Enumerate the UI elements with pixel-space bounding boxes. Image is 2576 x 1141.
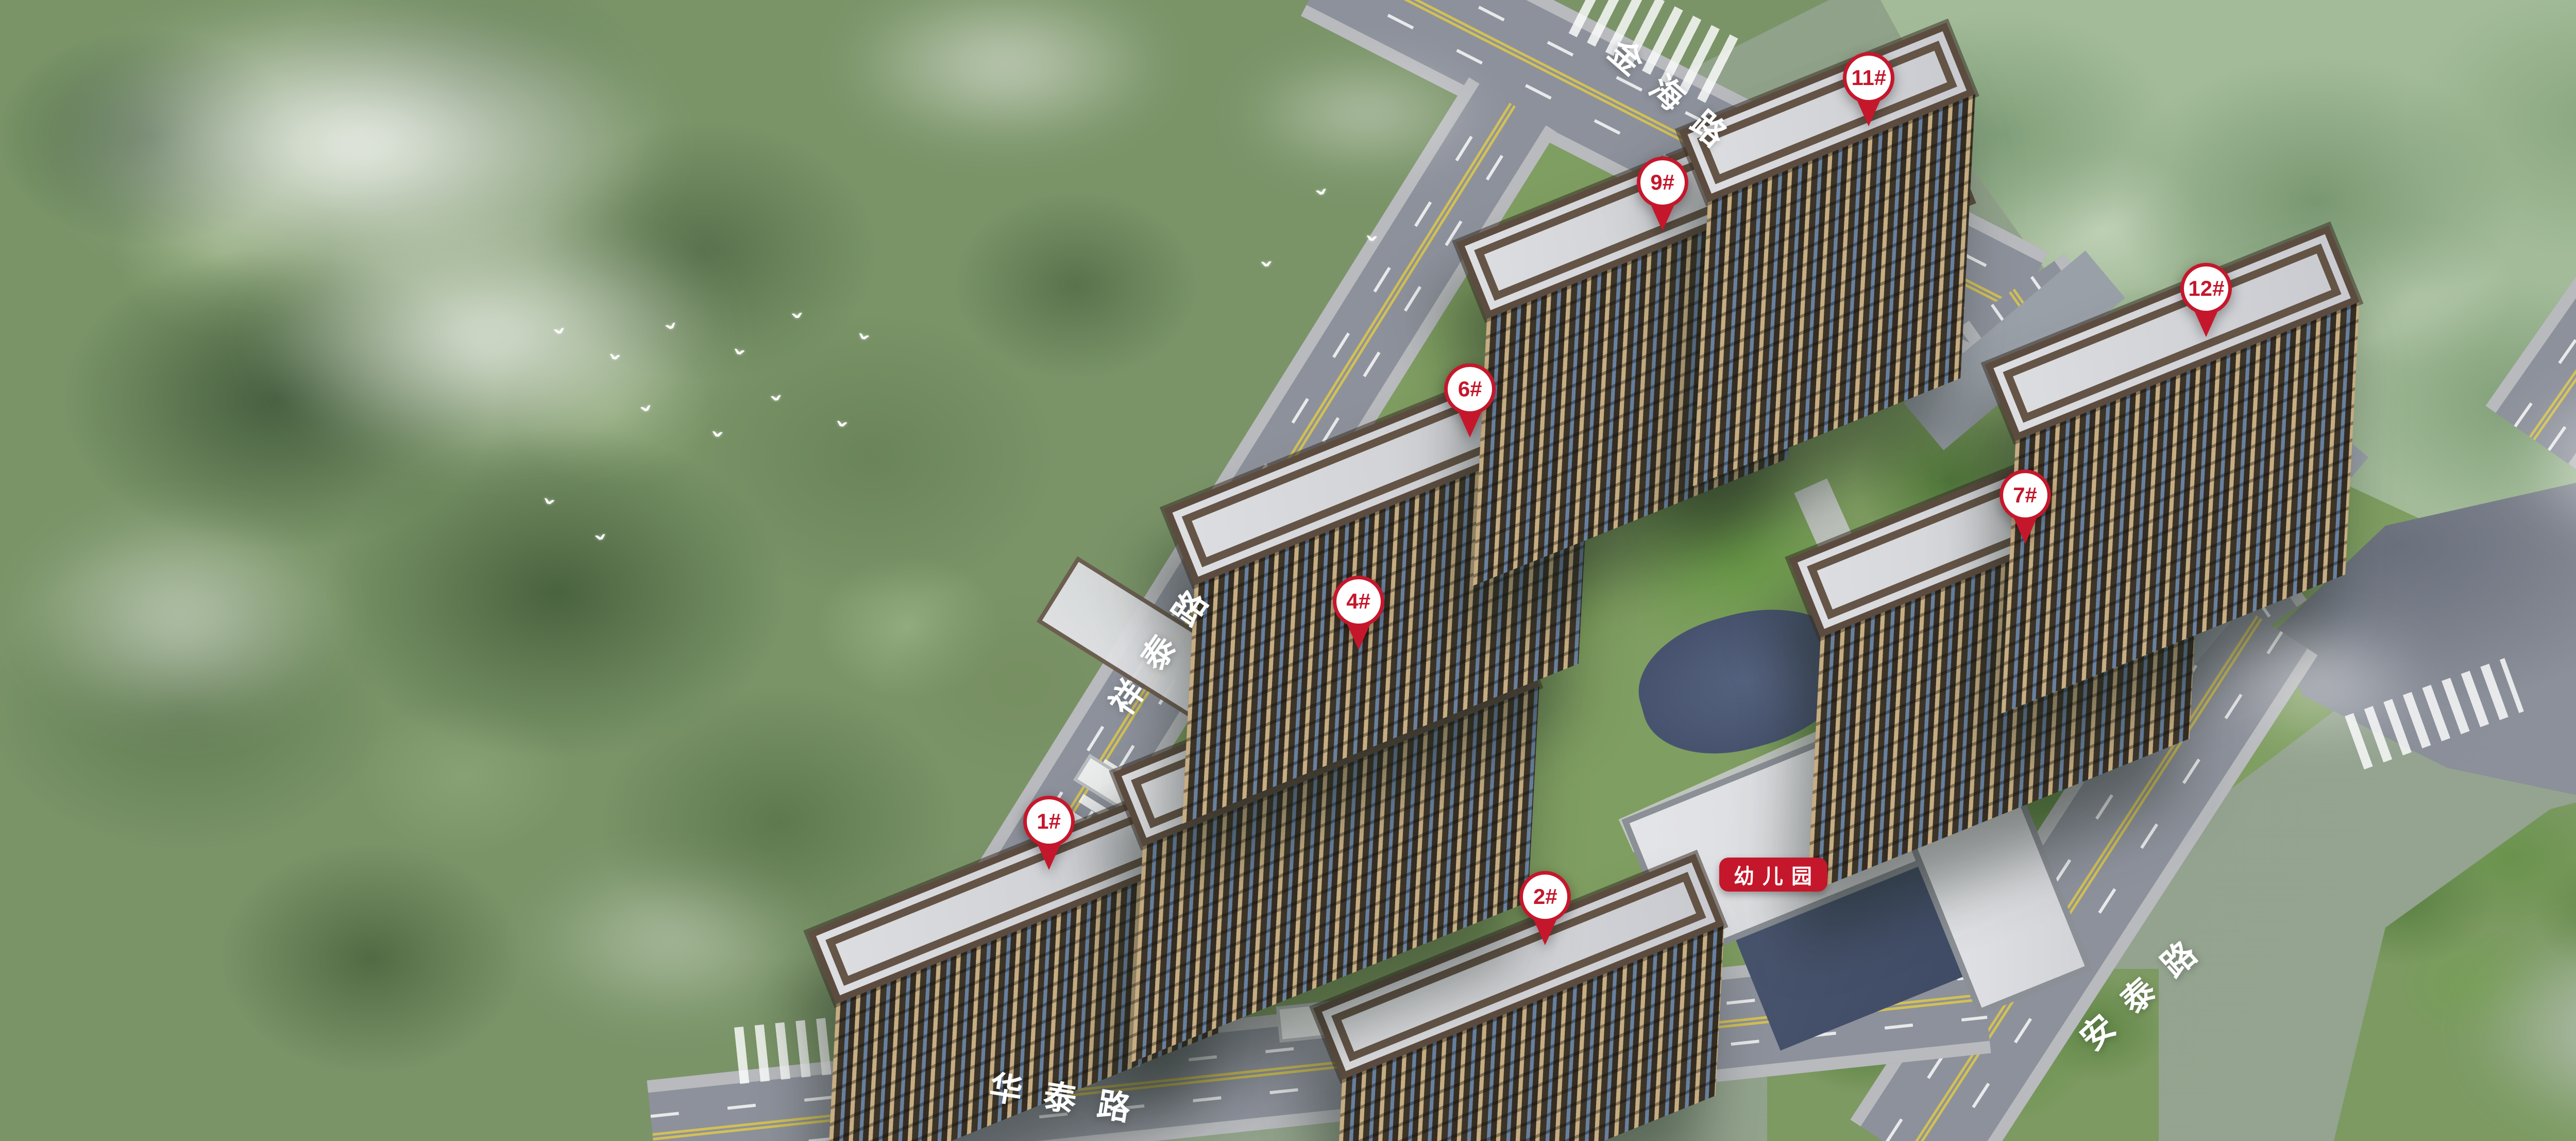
building-marker-6: 6#	[1444, 363, 1496, 415]
marker-circle: 9#	[1637, 157, 1688, 208]
building-marker-9: 9#	[1637, 157, 1688, 208]
bird-icon	[1262, 267, 1272, 285]
marker-label: 2#	[1533, 884, 1557, 909]
building-marker-1: 1#	[1023, 796, 1075, 847]
marker-circle: 6#	[1444, 363, 1496, 415]
building-marker-7: 7#	[1999, 469, 2051, 521]
marker-label: 1#	[1037, 809, 1061, 834]
bird-icon	[710, 438, 721, 456]
building-marker-12: 12#	[2180, 263, 2232, 314]
aerial-masterplan-rendering: 金海路 祥泰路 安泰路 华泰路 1# 2# 4# 6# 7# 9# 11# 12…	[0, 0, 2576, 1141]
marker-label: 9#	[1650, 170, 1674, 195]
marker-circle: 2#	[1519, 871, 1571, 922]
kindergarten-badge: 幼儿园	[1719, 858, 1827, 892]
building-marker-2: 2#	[1519, 871, 1571, 922]
marker-label: 12#	[2188, 276, 2224, 301]
building-marker-11: 11#	[1843, 52, 1894, 104]
marker-circle: 11#	[1843, 52, 1894, 104]
marker-circle: 4#	[1333, 576, 1384, 627]
marker-circle: 12#	[2180, 263, 2232, 314]
marker-label: 4#	[1346, 589, 1370, 614]
bird-icon	[792, 319, 803, 337]
marker-label: 7#	[2013, 483, 2037, 508]
building-marker-4: 4#	[1333, 576, 1384, 627]
marker-circle: 1#	[1023, 796, 1075, 847]
lawn-southeast	[2293, 747, 2576, 1141]
bird-icon	[1364, 242, 1375, 260]
marker-circle: 7#	[1999, 469, 2051, 521]
marker-label: 11#	[1851, 65, 1886, 90]
marker-label: 6#	[1458, 377, 1482, 401]
